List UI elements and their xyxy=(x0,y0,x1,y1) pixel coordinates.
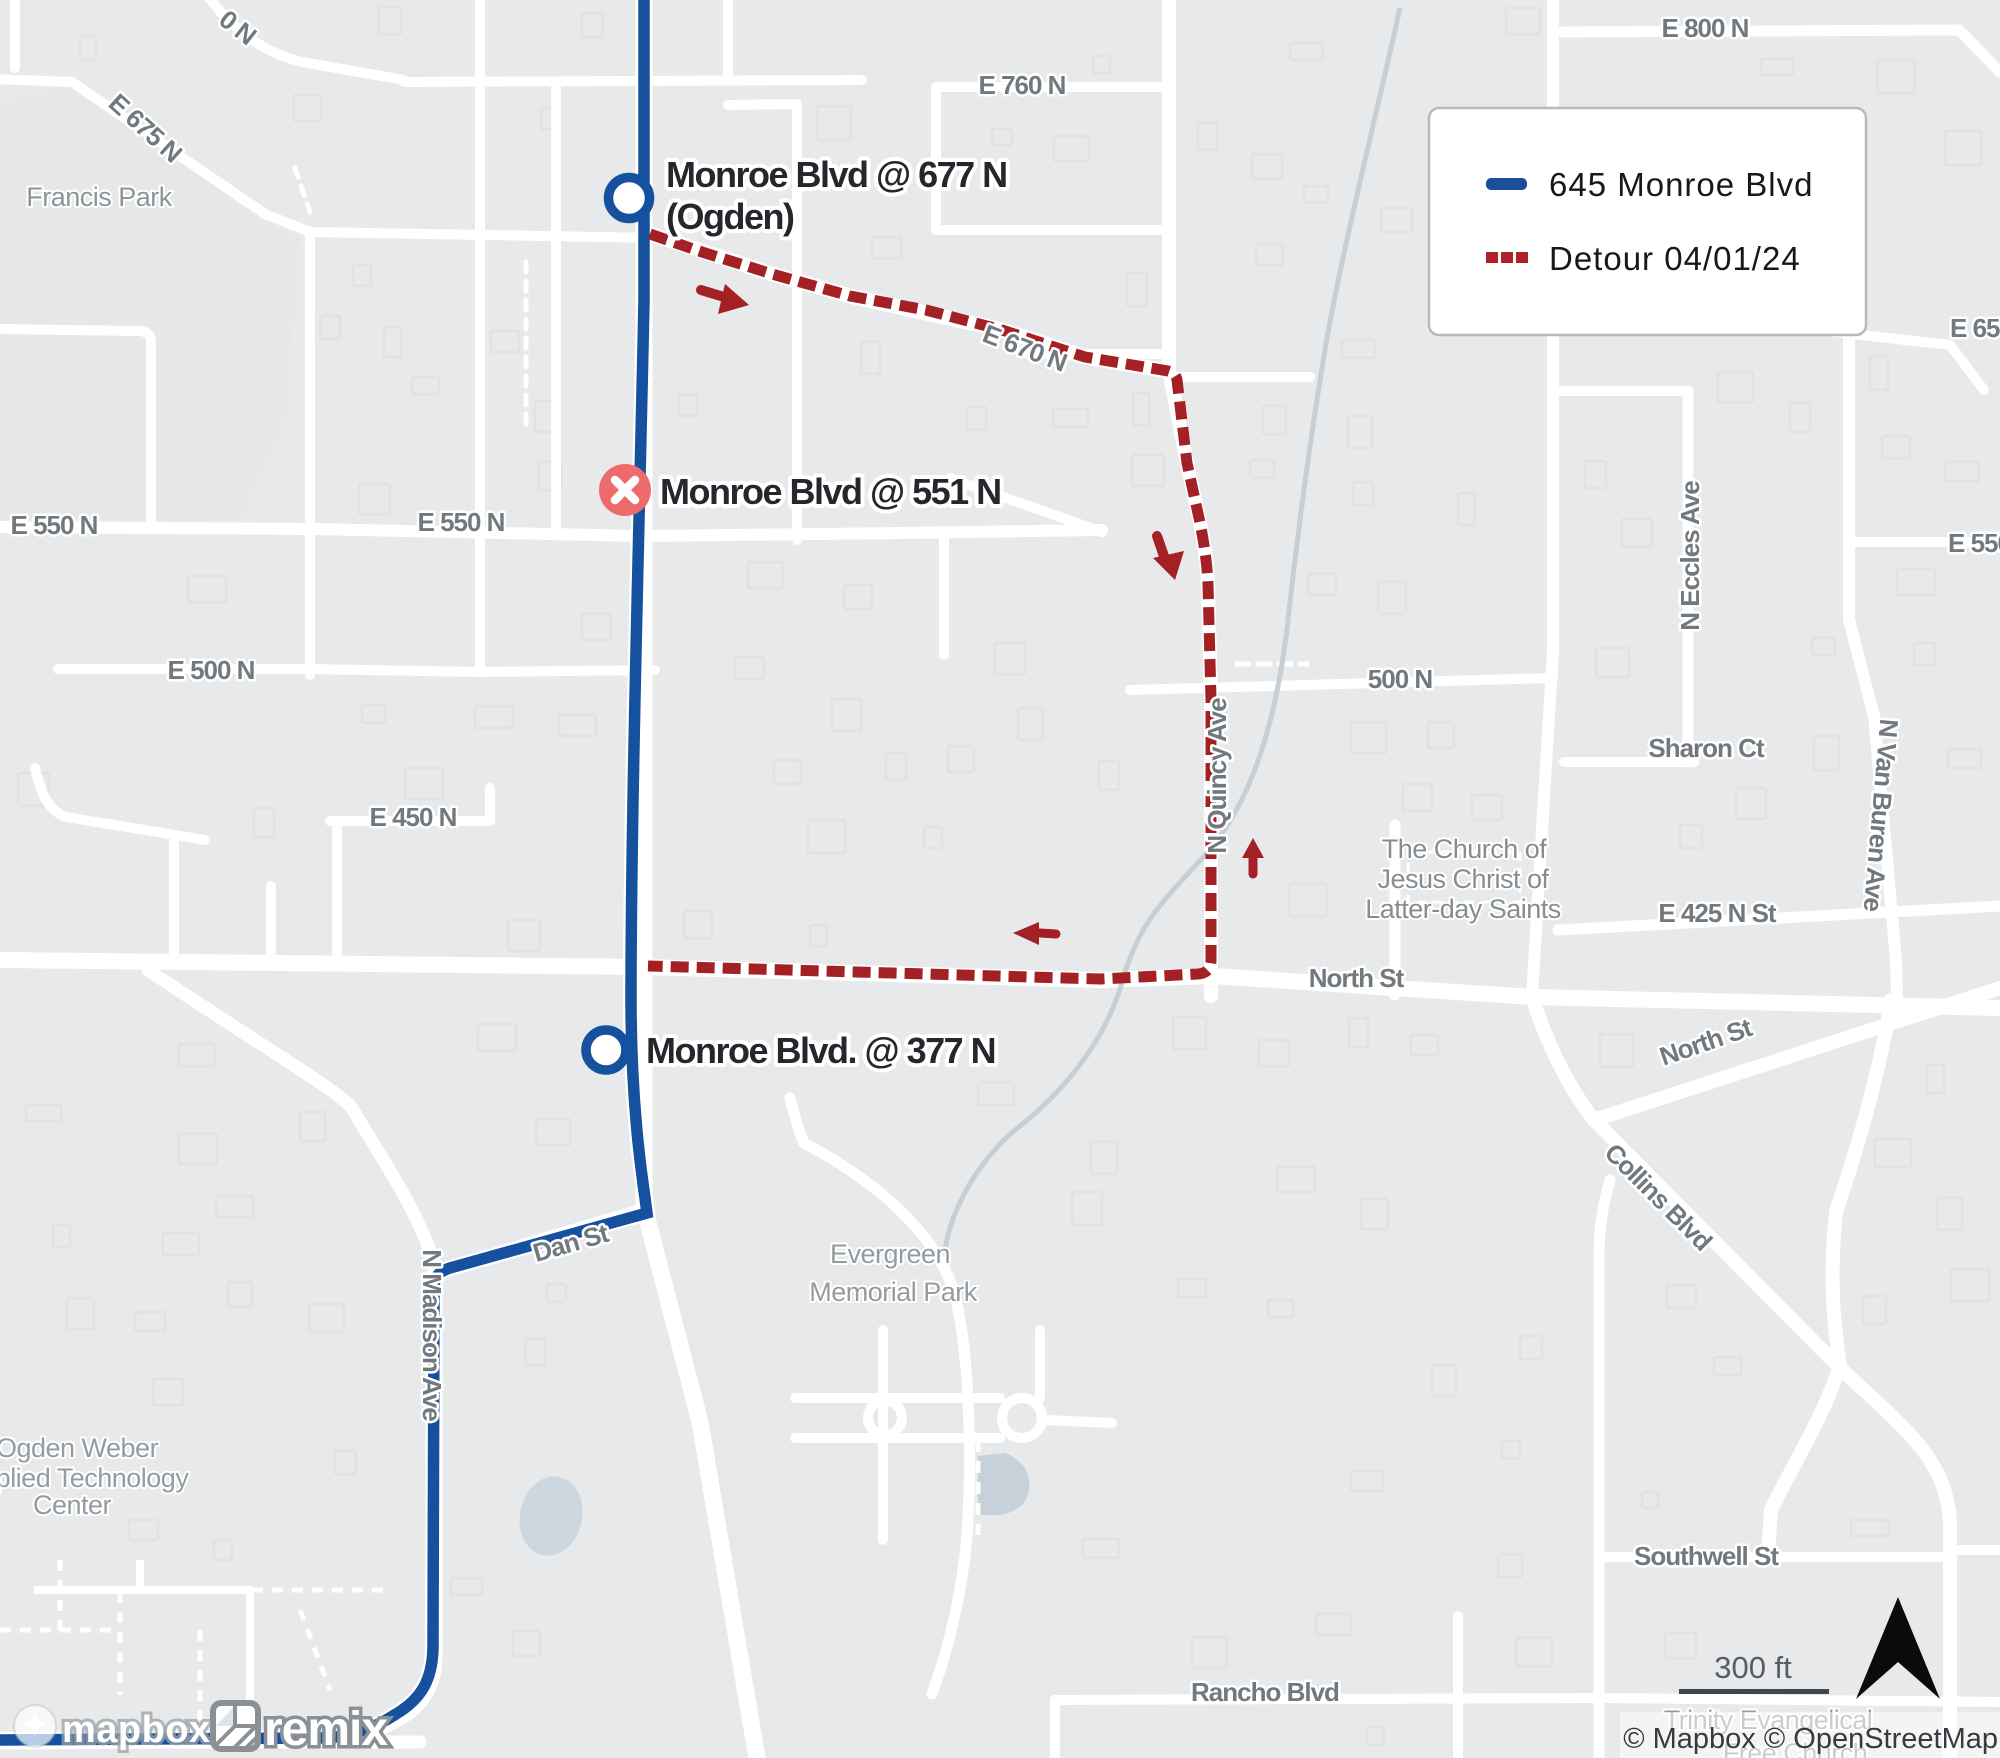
svg-text:Evergreen: Evergreen xyxy=(830,1239,950,1269)
svg-text:mapbox: mapbox xyxy=(62,1709,211,1751)
svg-text:Monroe Blvd @ 677 N: Monroe Blvd @ 677 N xyxy=(666,154,1007,195)
svg-text:E 760 N: E 760 N xyxy=(979,70,1066,100)
svg-text:E 450 N: E 450 N xyxy=(370,802,457,832)
svg-text:© Mapbox © OpenStreetMap: © Mapbox © OpenStreetMap xyxy=(1623,1723,1998,1755)
svg-text:Jesus Christ of: Jesus Christ of xyxy=(1377,864,1549,894)
svg-text:Southwell St: Southwell St xyxy=(1634,1541,1779,1571)
svg-text:The Church of: The Church of xyxy=(1382,834,1548,864)
svg-text:E 800 N: E 800 N xyxy=(1662,13,1749,43)
svg-text:E 550: E 550 xyxy=(1948,528,2000,558)
svg-text:Sharon Ct: Sharon Ct xyxy=(1648,733,1765,763)
svg-text:300 ft: 300 ft xyxy=(1714,1650,1792,1685)
svg-text:E 550 N: E 550 N xyxy=(11,510,98,540)
svg-text:Monroe Blvd. @ 377 N: Monroe Blvd. @ 377 N xyxy=(646,1030,995,1071)
svg-text:Latter-day Saints: Latter-day Saints xyxy=(1365,894,1561,924)
svg-text:E 500 N: E 500 N xyxy=(168,655,255,685)
svg-text:E 650: E 650 xyxy=(1950,313,2000,343)
svg-text:N Quincy Ave: N Quincy Ave xyxy=(1202,698,1232,854)
svg-text:Monroe Blvd @ 551 N: Monroe Blvd @ 551 N xyxy=(660,471,1001,512)
svg-text:N Eccles Ave: N Eccles Ave xyxy=(1675,481,1705,631)
svg-text:N Madison Ave: N Madison Ave xyxy=(417,1249,447,1421)
svg-text:North St: North St xyxy=(1309,963,1405,993)
svg-text:Memorial Park: Memorial Park xyxy=(809,1277,978,1307)
svg-text:E 550 N: E 550 N xyxy=(418,507,505,537)
svg-text:remix: remix xyxy=(264,1703,388,1756)
svg-text:645 Monroe Blvd: 645 Monroe Blvd xyxy=(1549,166,1813,203)
svg-text:Rancho Blvd: Rancho Blvd xyxy=(1191,1677,1339,1707)
svg-text:E 425 N St: E 425 N St xyxy=(1658,898,1777,928)
svg-text:plied Technology: plied Technology xyxy=(0,1463,189,1493)
svg-text:Detour 04/01/24: Detour 04/01/24 xyxy=(1549,240,1801,277)
svg-text:Francis Park: Francis Park xyxy=(26,182,173,212)
svg-text:500 N: 500 N xyxy=(1368,664,1433,694)
svg-text:Center: Center xyxy=(33,1490,112,1520)
svg-text:Ogden Weber: Ogden Weber xyxy=(0,1433,159,1463)
svg-text:(Ogden): (Ogden) xyxy=(666,196,794,237)
